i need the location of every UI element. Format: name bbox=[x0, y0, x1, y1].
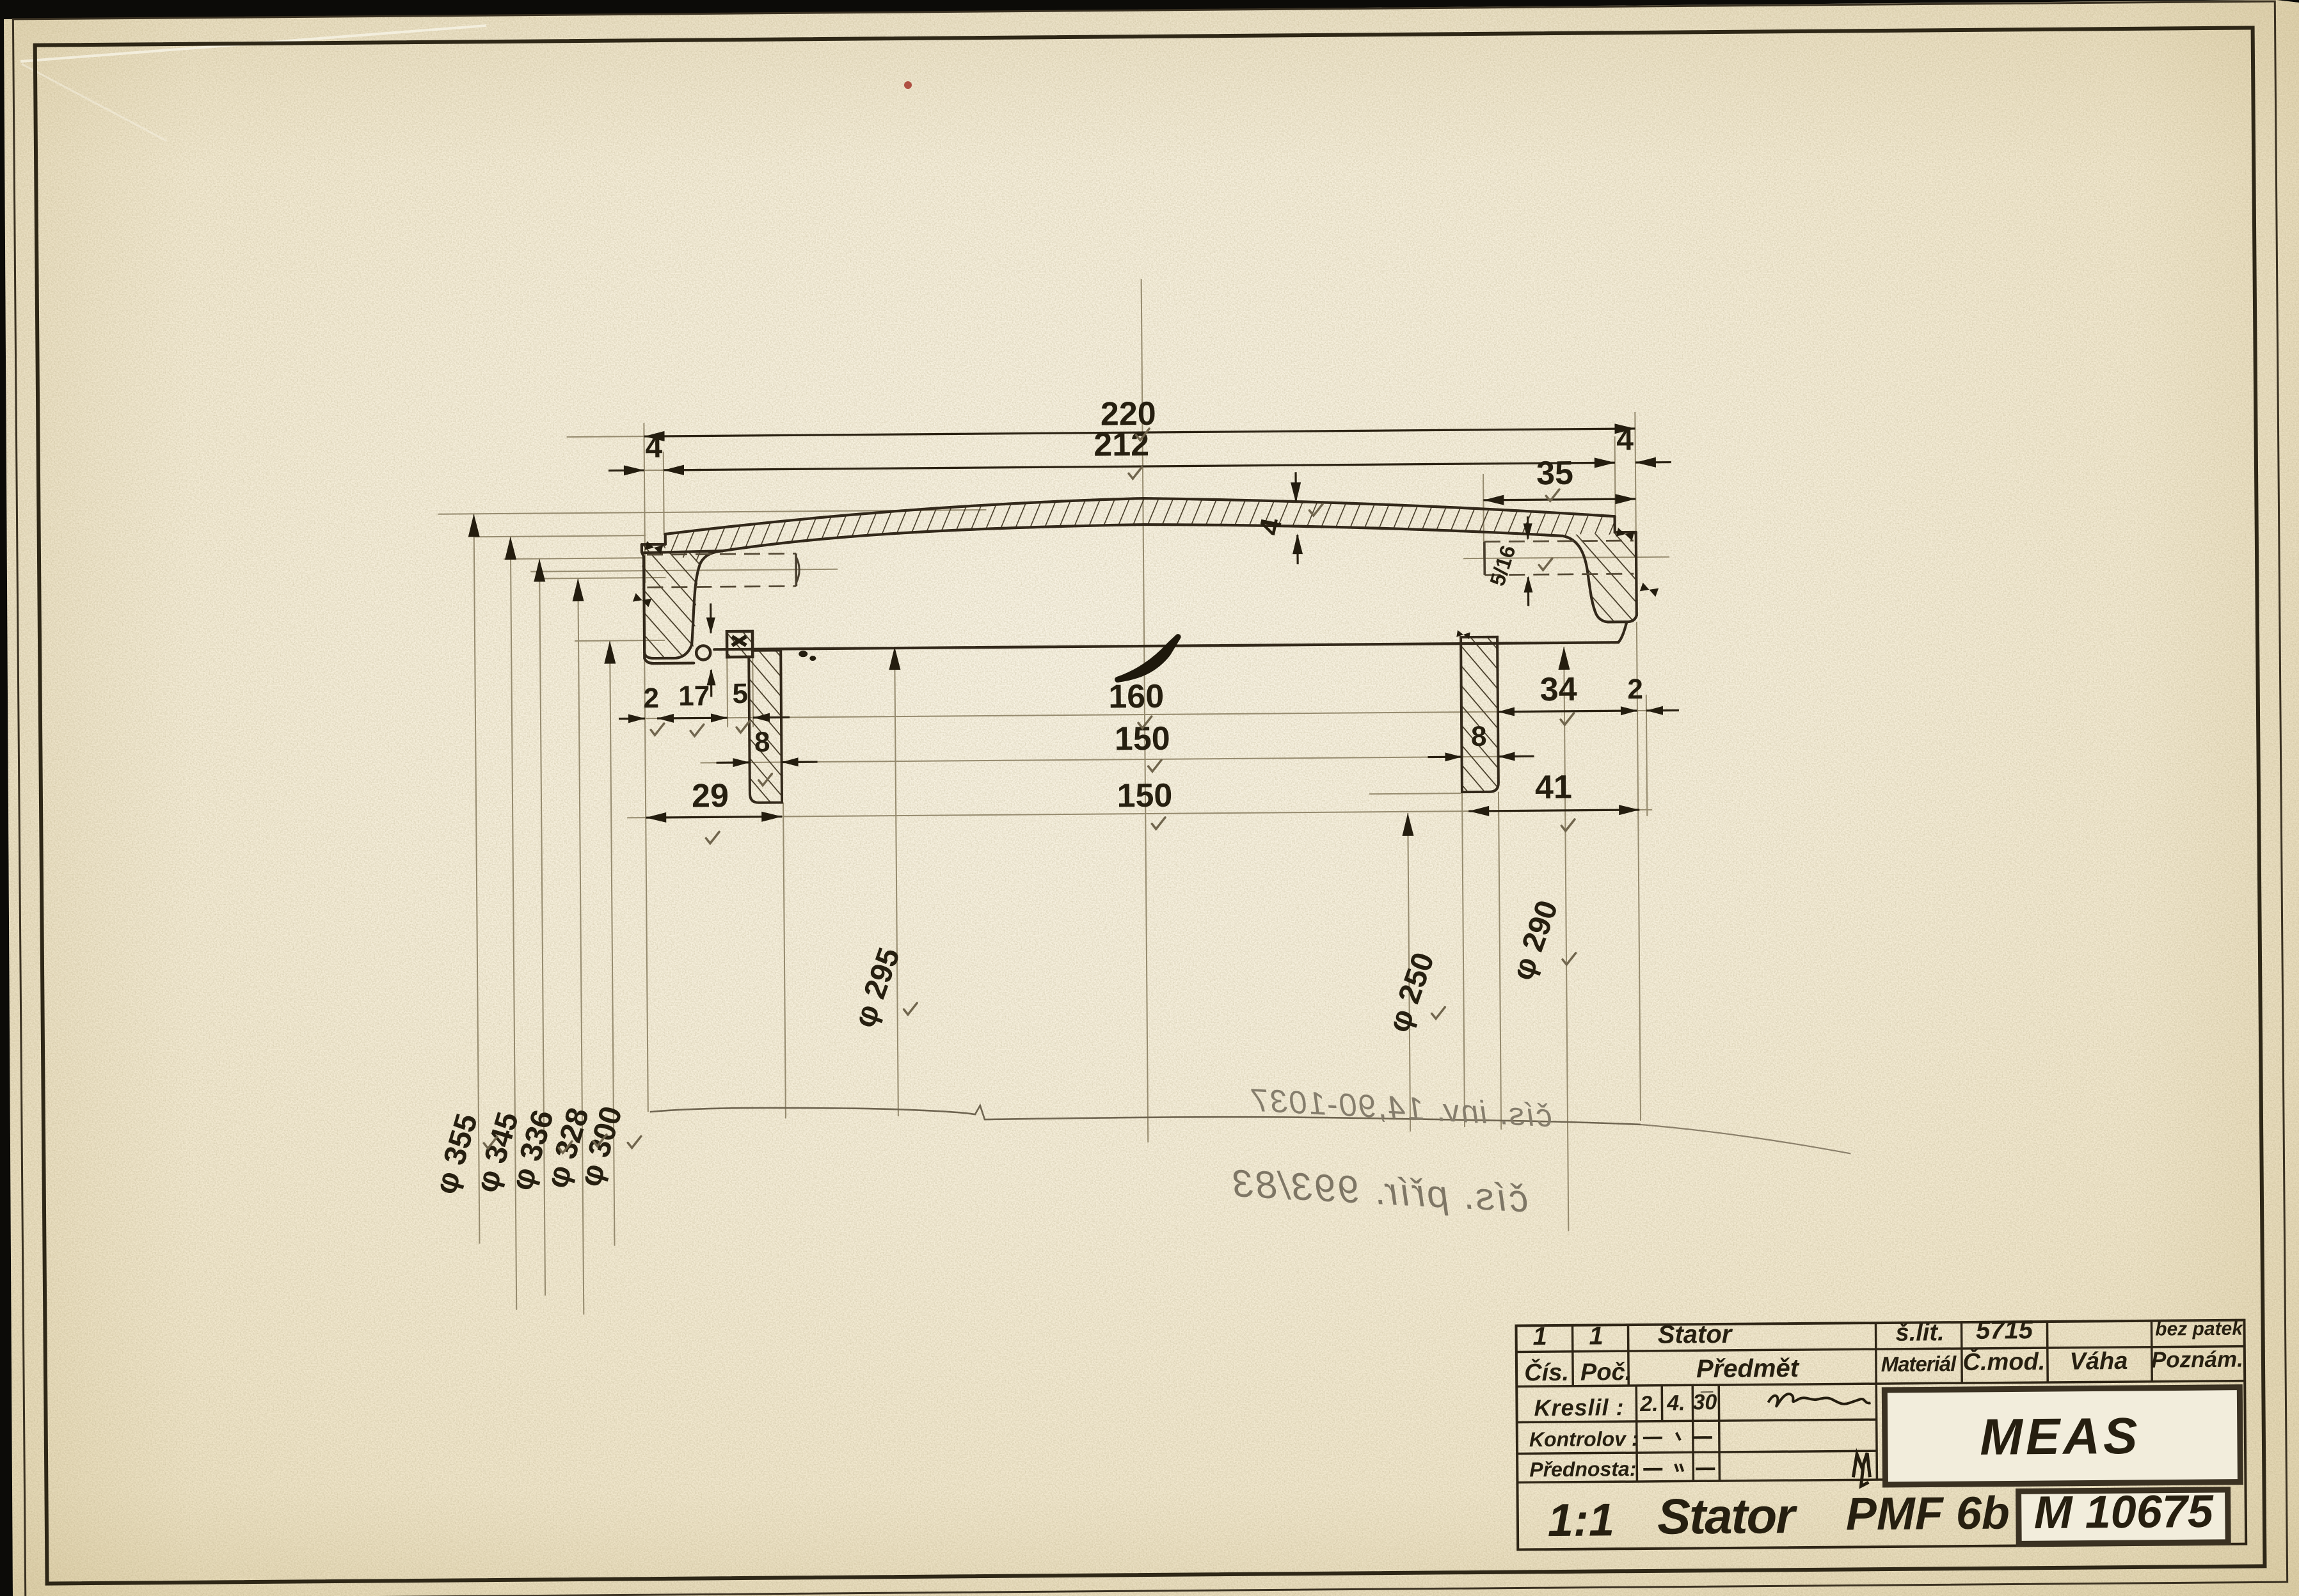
svg-text:Váha: Váha bbox=[2069, 1348, 2128, 1375]
svg-text:17: 17 bbox=[678, 680, 710, 711]
svg-text:2: 2 bbox=[1627, 674, 1643, 705]
svg-text:Poznám.: Poznám. bbox=[2151, 1347, 2243, 1373]
svg-text:3̅0: 3̅0 bbox=[1692, 1390, 1717, 1414]
svg-text:MEAS: MEAS bbox=[1980, 1407, 2141, 1466]
svg-text:1: 1 bbox=[1532, 1322, 1547, 1350]
svg-text:35: 35 bbox=[1536, 455, 1573, 492]
svg-text:34: 34 bbox=[1540, 671, 1577, 708]
svg-text:Přednosta:: Přednosta: bbox=[1529, 1457, 1636, 1481]
svg-text:Materiál: Materiál bbox=[1881, 1352, 1957, 1376]
svg-text:2: 2 bbox=[643, 683, 659, 714]
svg-text:š.lit.: š.lit. bbox=[1895, 1319, 1944, 1347]
svg-text:4.: 4. bbox=[1666, 1391, 1685, 1415]
svg-text:bez patek: bez patek bbox=[2155, 1318, 2243, 1340]
svg-text:1: 1 bbox=[1589, 1322, 1603, 1350]
svg-text:29: 29 bbox=[692, 777, 729, 814]
svg-text:150: 150 bbox=[1117, 777, 1172, 815]
svg-text:212: 212 bbox=[1094, 426, 1149, 464]
svg-text:Stator: Stator bbox=[1657, 1487, 1798, 1545]
svg-text:Stator: Stator bbox=[1658, 1320, 1733, 1349]
svg-text:4: 4 bbox=[645, 431, 662, 464]
svg-text:5715: 5715 bbox=[1976, 1316, 2033, 1345]
svg-text:8: 8 bbox=[754, 727, 770, 758]
svg-text:Předmět: Předmět bbox=[1696, 1354, 1800, 1383]
svg-text:Kreslil :: Kreslil : bbox=[1534, 1394, 1624, 1421]
svg-text:Kontrolov :: Kontrolov : bbox=[1529, 1427, 1639, 1451]
svg-text:150: 150 bbox=[1115, 720, 1170, 758]
svg-text:8: 8 bbox=[1471, 721, 1487, 752]
svg-text:160: 160 bbox=[1108, 678, 1164, 716]
svg-text:1:1: 1:1 bbox=[1548, 1494, 1615, 1546]
svg-text:Čís.: Čís. bbox=[1524, 1357, 1569, 1387]
svg-text:5: 5 bbox=[732, 678, 748, 709]
svg-text:4: 4 bbox=[1616, 423, 1634, 457]
svg-text:PMF 6b: PMF 6b bbox=[1846, 1487, 2010, 1540]
svg-text:Č.mod.: Č.mod. bbox=[1962, 1347, 2045, 1376]
svg-text:2.: 2. bbox=[1639, 1392, 1659, 1416]
svg-text:Poč.: Poč. bbox=[1580, 1359, 1632, 1386]
svg-text:M 10675: M 10675 bbox=[2033, 1486, 2214, 1538]
svg-text:41: 41 bbox=[1535, 769, 1572, 806]
